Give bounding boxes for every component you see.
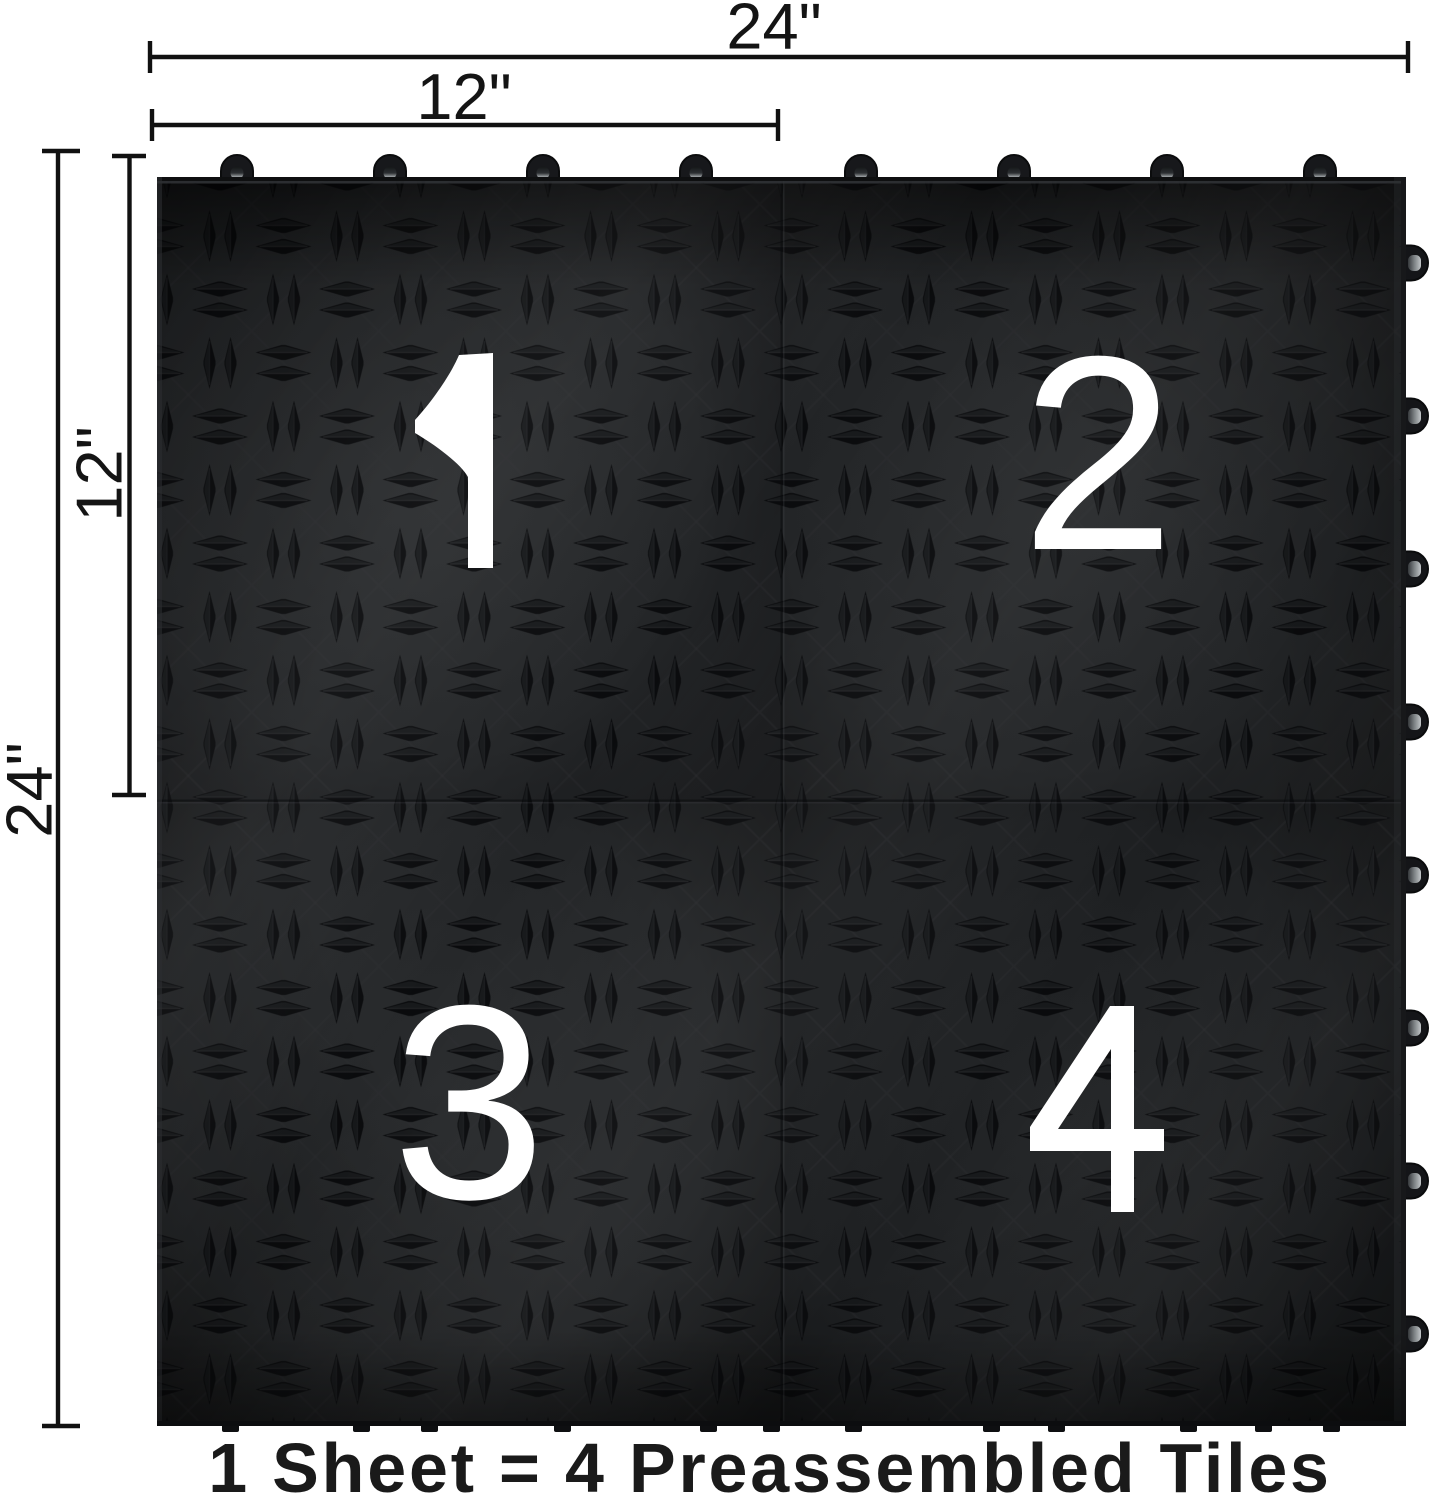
- svg-text:1 Sheet = 4 Preassembled Tiles: 1 Sheet = 4 Preassembled Tiles: [208, 1429, 1332, 1500]
- svg-text:12": 12": [63, 426, 136, 521]
- svg-text:3: 3: [392, 947, 546, 1257]
- svg-text:24": 24": [0, 742, 66, 837]
- svg-text:2: 2: [1021, 298, 1175, 608]
- svg-text:24": 24": [726, 0, 821, 63]
- svg-text:12": 12": [416, 60, 511, 133]
